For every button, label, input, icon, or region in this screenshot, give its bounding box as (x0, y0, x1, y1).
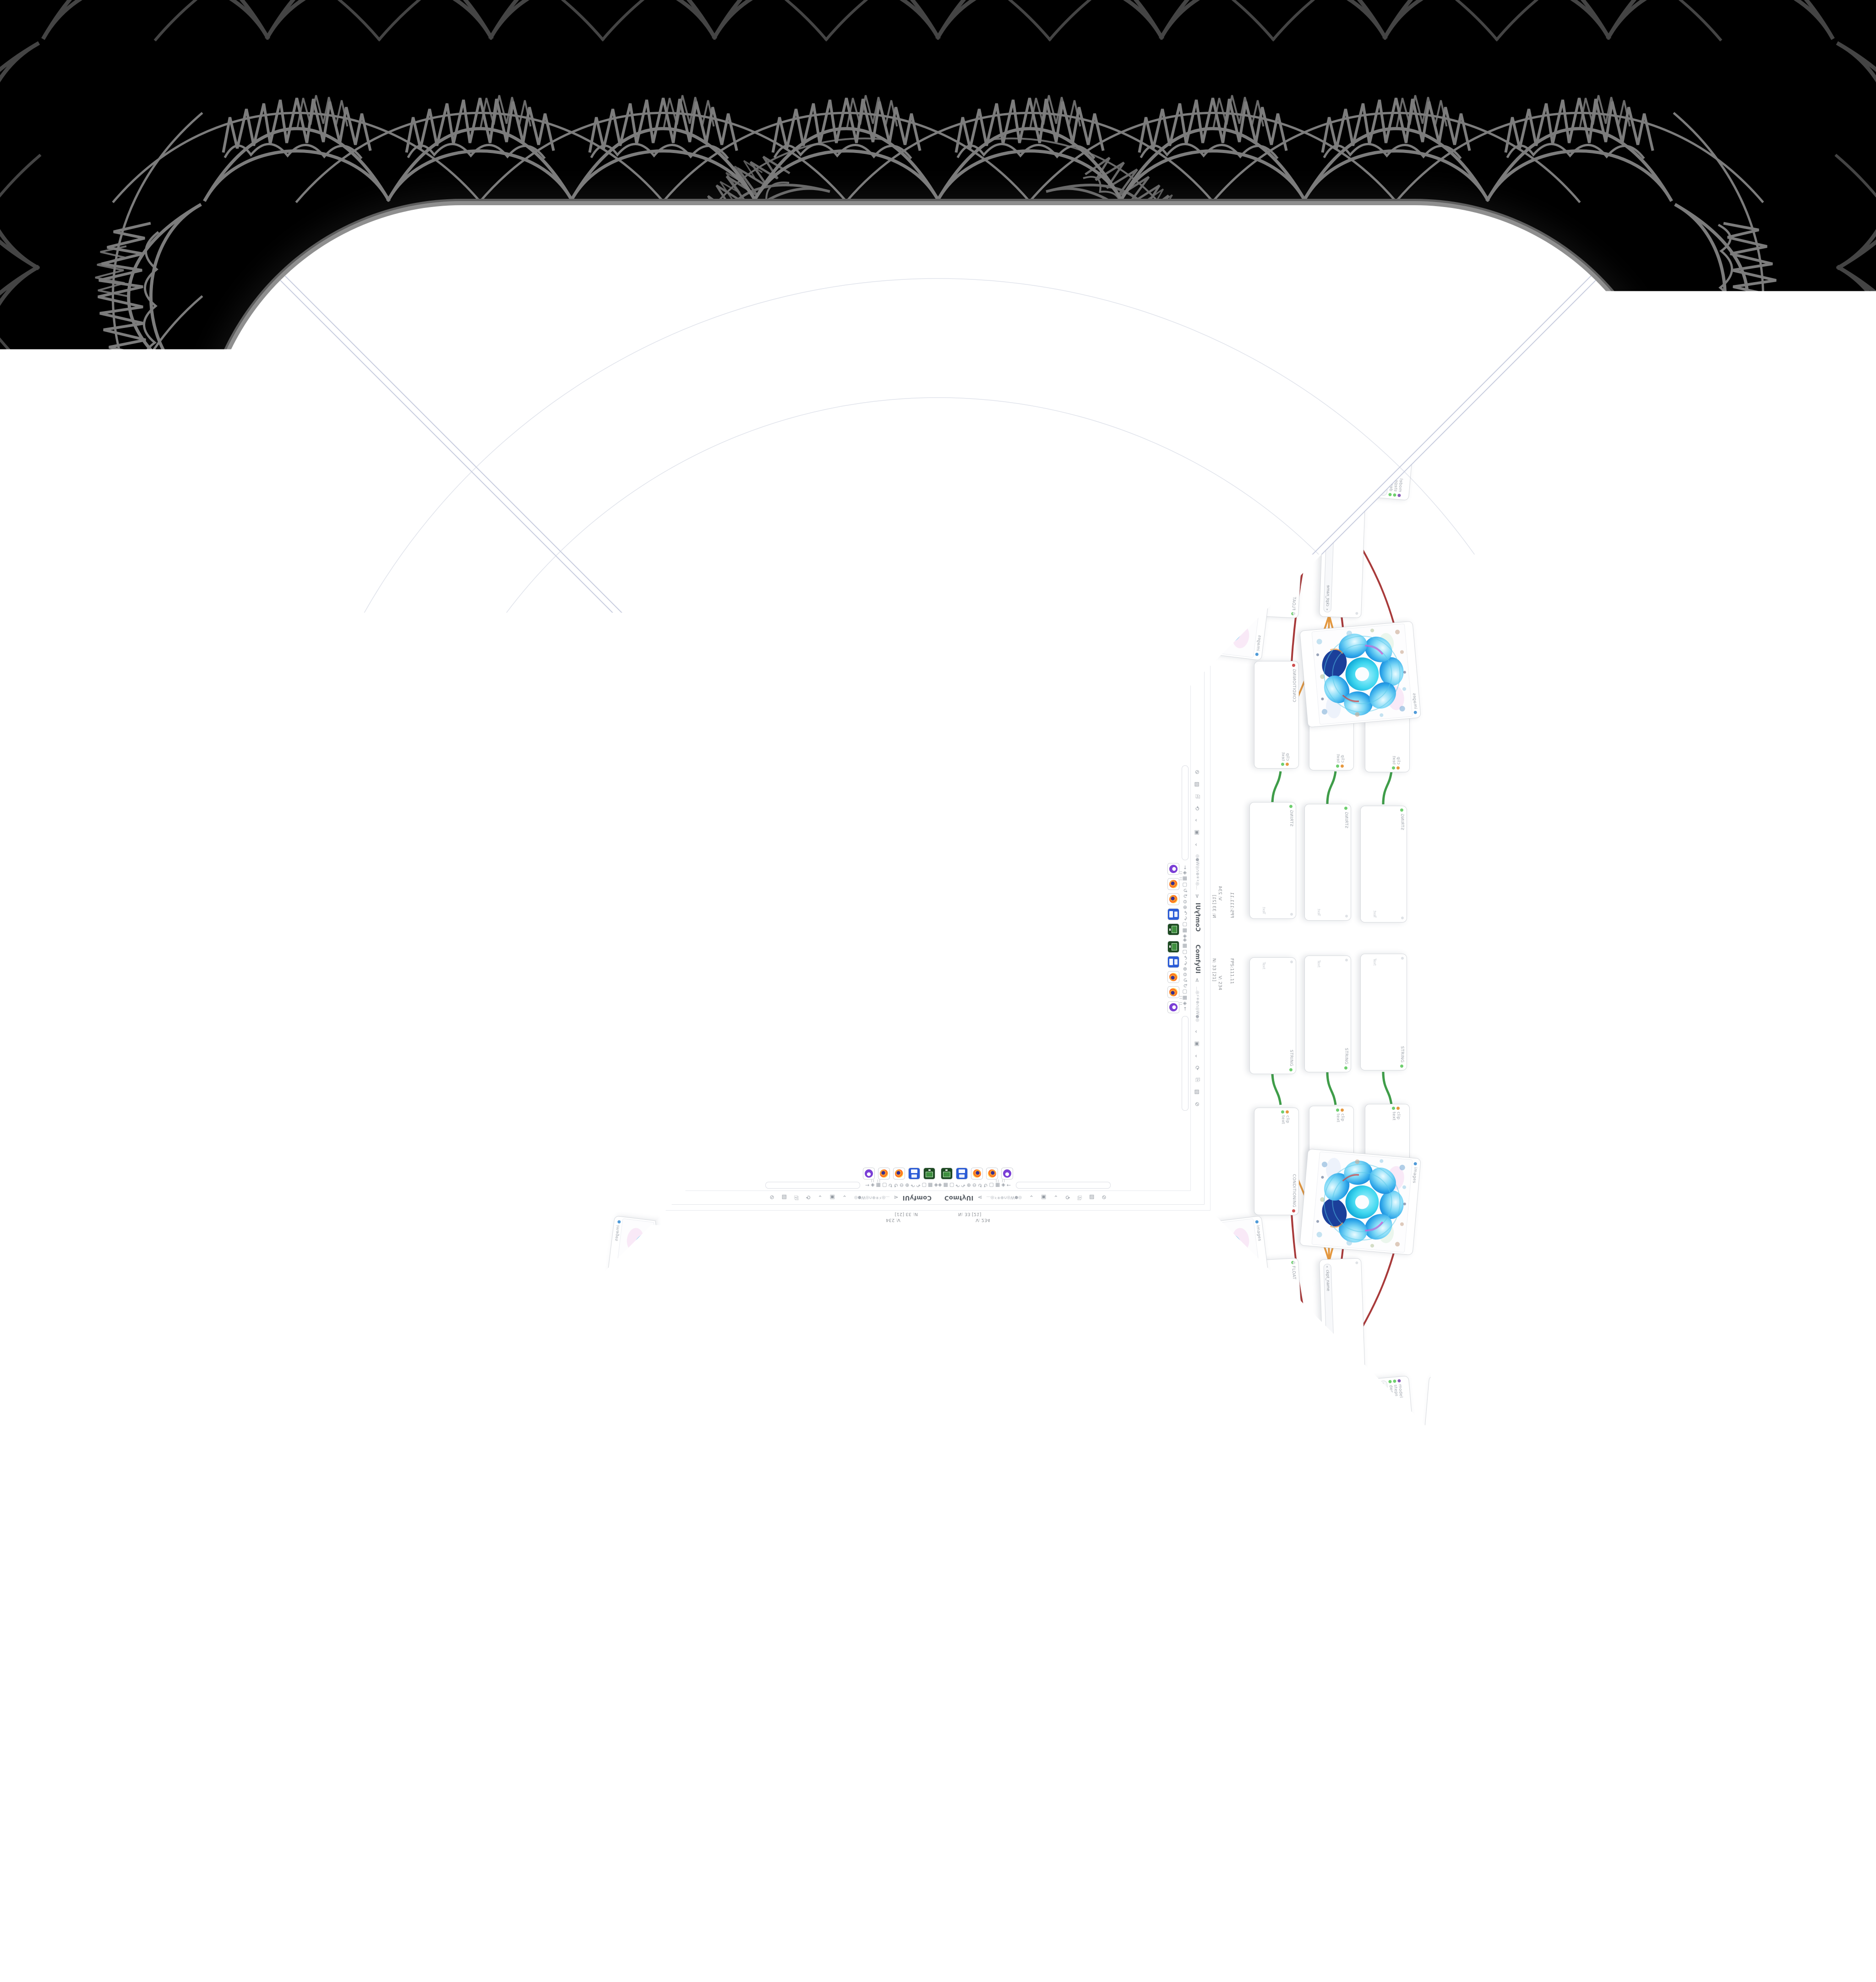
canvas-toolbar-track[interactable] (1182, 765, 1189, 860)
output-dot[interactable] (808, 439, 812, 442)
node-collapse-dot[interactable] (957, 439, 960, 442)
clear-workflow-icon[interactable]: ⊘ (1102, 233, 1107, 239)
clear-workflow-icon[interactable]: ⊘ (676, 770, 682, 774)
float-output-dot[interactable] (1449, 1534, 1452, 1537)
denoised-output-dot[interactable] (1625, 296, 1630, 301)
preview-image-node[interactable]: images (455, 621, 577, 728)
text-placeholder[interactable]: Text (909, 1317, 916, 1321)
output-dot[interactable] (664, 1543, 667, 1546)
firefox-icon[interactable] (971, 1659, 983, 1671)
denoise-input-dot[interactable] (1389, 493, 1392, 497)
node-collapse-dot[interactable] (959, 1345, 961, 1348)
canvas-toolbar-track[interactable] (765, 688, 860, 694)
string-node[interactable]: STRING Text (525, 804, 572, 921)
workflow-caret-icon[interactable]: ⌄ (676, 842, 682, 847)
string-node[interactable]: STRING Text (806, 469, 922, 516)
image-viewer-app-icon[interactable] (941, 1168, 953, 1179)
preview-image-node[interactable]: images (551, 205, 661, 311)
output-dot[interactable] (1401, 808, 1404, 812)
denoise-input-dot[interactable] (1446, 1380, 1450, 1383)
canvas-toolbar-track[interactable] (1649, 765, 1656, 860)
ckpt-name-widget[interactable]: ckpt_name RealVisXL_V4.0_Lightning.safet… (413, 1500, 612, 1514)
preview-image-node[interactable]: images (1417, 621, 1538, 728)
model-input-dot[interactable] (1437, 1379, 1440, 1383)
ckpt-name-widget[interactable]: ckpt_name RealVisXL_V4.0_Lightning.safet… (1264, 1500, 1463, 1514)
clip-input-dot[interactable] (1110, 1549, 1113, 1552)
node-collapse-dot[interactable] (528, 915, 531, 917)
conditioning-node[interactable]: CONDITIONING clip text (577, 1108, 622, 1215)
preview-image-node[interactable]: images (621, 455, 728, 577)
latent-image-input-dot[interactable] (410, 222, 415, 227)
clip-input-dot[interactable] (1549, 763, 1552, 766)
clipboard-icon[interactable]: ⎘ (794, 1637, 799, 1644)
string-node[interactable]: STRING Text (804, 1487, 921, 1534)
preview-image-node[interactable]: images (1149, 338, 1255, 459)
workflow-caret-icon[interactable]: ⌄ (842, 1638, 847, 1644)
clip-input-dot[interactable] (1108, 532, 1112, 535)
text-placeholder[interactable]: Text (962, 1572, 969, 1576)
robot-app-icon[interactable] (697, 1001, 709, 1013)
output-dot[interactable] (584, 805, 587, 808)
denoise-input-dot[interactable] (1380, 484, 1383, 488)
clear-workflow-icon[interactable]: ⊘ (1102, 676, 1107, 682)
canvas-toolbar-track[interactable] (1016, 1649, 1111, 1656)
string-node[interactable]: STRING Text (957, 288, 1074, 334)
string-node[interactable]: STRING Text (802, 288, 919, 334)
guider-input-dot[interactable] (1633, 423, 1638, 428)
guider-input-dot[interactable] (1448, 1633, 1453, 1638)
string-node[interactable]: STRING Text (955, 1305, 1072, 1351)
text-placeholder[interactable]: Text (958, 499, 965, 503)
denoised-output-dot[interactable] (296, 246, 301, 251)
export-image-icon[interactable]: ▧ (782, 233, 787, 239)
clipboard-icon[interactable]: ⎘ (1078, 1194, 1082, 1201)
clip-input-dot[interactable] (764, 379, 768, 382)
text-placeholder[interactable]: Text (499, 911, 503, 918)
string-node[interactable]: STRING Text (580, 802, 627, 919)
output-dot[interactable] (1209, 581, 1212, 584)
text-placeholder[interactable]: Text (1373, 911, 1377, 918)
string-node[interactable]: STRING Text (954, 1431, 1070, 1478)
output-dot[interactable] (1292, 664, 1296, 667)
node-collapse-dot[interactable] (612, 1480, 615, 1483)
steps-input-dot[interactable] (1380, 431, 1383, 435)
clip-input-dot[interactable] (1341, 764, 1344, 768)
ckpt-name-widget[interactable]: ckpt_name RealVisXL_V4.0_Lightning.safet… (361, 1264, 376, 1463)
clip-input-dot[interactable] (1108, 379, 1112, 382)
node-collapse-dot[interactable] (960, 583, 963, 586)
preview-image-node[interactable]: images (205, 551, 311, 661)
text-input-dot[interactable] (1554, 763, 1557, 766)
workflow-name[interactable]: …◎⚡✳⊕∩◎W●◎ (1638, 854, 1643, 890)
workflow-name[interactable]: …◎⚡✳⊕∩◎W●◎ (234, 854, 238, 890)
output-dot[interactable] (1545, 1068, 1549, 1071)
share-icon[interactable]: ⋖ (1194, 894, 1201, 898)
output-dot[interactable] (1434, 1065, 1438, 1068)
preview-image-node[interactable]: images (1565, 1216, 1671, 1326)
string-node[interactable]: STRING Text (343, 956, 389, 1072)
images-input-dot[interactable] (653, 294, 656, 297)
image-output-dot[interactable] (293, 223, 298, 227)
string-node[interactable]: STRING Text (469, 806, 516, 923)
sigmas-input-dot[interactable] (228, 1457, 232, 1462)
output-dot[interactable] (1490, 1066, 1494, 1070)
clip-output-dot[interactable] (391, 1460, 394, 1463)
node-collapse-dot[interactable] (383, 959, 386, 961)
node-collapse-dot[interactable] (959, 383, 961, 386)
firefox-icon[interactable] (986, 206, 998, 218)
model-input-dot[interactable] (494, 1398, 497, 1402)
text-placeholder[interactable]: Text (1317, 909, 1321, 916)
output-dot[interactable] (1571, 251, 1576, 256)
model-input-dot[interactable] (436, 1379, 440, 1383)
sampler-input-dot[interactable] (233, 419, 237, 424)
text-placeholder[interactable]: Text (907, 610, 914, 614)
text-placeholder[interactable]: Text (1572, 962, 1576, 969)
float-output-dot[interactable] (1449, 339, 1452, 343)
text-placeholder[interactable]: Text (1262, 962, 1266, 969)
output-dot[interactable] (1064, 473, 1068, 476)
images-input-dot[interactable] (653, 1256, 656, 1259)
firefox-icon[interactable] (878, 206, 890, 218)
workflow-name[interactable]: …◎⚡✳⊕∩◎W●◎ (854, 234, 889, 238)
text-input-dot[interactable] (763, 592, 766, 595)
string-node[interactable]: STRING Text (802, 1542, 919, 1589)
text-placeholder[interactable]: Text (958, 1461, 965, 1465)
save-icon[interactable]: ▣ (1041, 233, 1046, 239)
images-input-dot[interactable] (711, 1414, 714, 1418)
export-image-icon[interactable]: ▧ (782, 1638, 787, 1644)
node-collapse-dot[interactable] (472, 917, 475, 919)
share-icon[interactable]: ⋖ (978, 1195, 982, 1201)
save-icon[interactable]: ▣ (233, 1041, 239, 1046)
node-collapse-dot[interactable] (913, 1545, 916, 1548)
canvas-toolbar-icons[interactable]: ◈▦▢↶↷⊕⊖↺↻▢▦◈← (1650, 938, 1656, 1012)
text-input-dot[interactable] (1554, 1110, 1557, 1114)
refresh-icon[interactable]: ⟳ (676, 806, 682, 810)
images-input-dot[interactable] (617, 653, 621, 656)
node-collapse-dot[interactable] (957, 1401, 960, 1404)
output-dot[interactable] (1345, 1066, 1348, 1070)
node-collapse-dot[interactable] (915, 528, 917, 531)
export-image-icon[interactable]: ▧ (1089, 1638, 1094, 1644)
denoise-input-dot[interactable] (493, 484, 496, 488)
text-placeholder[interactable]: Text (1461, 911, 1465, 918)
text-placeholder[interactable]: Text (300, 907, 304, 914)
workflow-name[interactable]: …◎⚡✳⊕∩◎W●◎ (234, 987, 238, 1022)
denoised-output-dot[interactable] (246, 1575, 251, 1580)
steps-input-dot[interactable] (493, 480, 497, 483)
canvas-toolbar-track[interactable] (765, 220, 860, 227)
node-collapse-dot[interactable] (328, 913, 331, 916)
images-input-dot[interactable] (288, 246, 292, 250)
share-icon[interactable]: ⋖ (1637, 978, 1644, 983)
canvas-toolbar-icons[interactable]: ◈▦▢↶↷⊕⊖↺↻▢▦◈← (938, 1650, 1012, 1656)
canvas-toolbar-track[interactable] (220, 1016, 227, 1111)
denoised-output-dot[interactable] (1625, 1575, 1630, 1580)
clip-input-dot[interactable] (1107, 476, 1110, 480)
node-collapse-dot[interactable] (1480, 612, 1483, 615)
steps-input-dot[interactable] (1441, 493, 1445, 497)
vae-output-dot[interactable] (1461, 384, 1464, 388)
output-dot[interactable] (808, 473, 812, 476)
guider-input-dot[interactable] (423, 1633, 428, 1638)
share-icon[interactable]: ⋖ (894, 233, 898, 239)
robot-app-icon[interactable] (206, 863, 218, 875)
text-placeholder[interactable]: Text (1572, 907, 1576, 914)
ckpt-name-widget[interactable]: ckpt_name RealVisXL_V4.0_Lightning.safet… (413, 361, 612, 376)
firefox-icon[interactable] (971, 206, 983, 218)
share-icon[interactable]: ⋖ (894, 1195, 898, 1201)
text-input-dot[interactable] (764, 1337, 768, 1340)
text-input-dot[interactable] (1392, 766, 1396, 770)
steps-input-dot[interactable] (480, 1380, 483, 1383)
output-dot[interactable] (807, 529, 810, 532)
conditioning-node[interactable]: CONDITIONING clip text (1539, 661, 1584, 769)
preview-image-node[interactable]: images (1216, 1565, 1326, 1671)
text-input-dot[interactable] (764, 1499, 768, 1502)
text-placeholder[interactable]: Text (1373, 958, 1377, 966)
text-placeholder[interactable]: Text (962, 610, 969, 614)
node-collapse-dot[interactable] (916, 1434, 919, 1437)
sigmas-input-dot[interactable] (414, 1644, 419, 1649)
string-node[interactable]: STRING Text (806, 399, 922, 445)
vae-output-dot[interactable] (1488, 1461, 1491, 1464)
output-dot[interactable] (808, 1435, 812, 1438)
noise-input-dot[interactable] (1628, 1444, 1632, 1449)
conditioning-node[interactable]: CONDITIONING clip text (1539, 1108, 1584, 1215)
node-collapse-dot[interactable] (913, 328, 916, 331)
workflow-name[interactable]: …◎⚡✳⊕∩◎W●◎ (1195, 854, 1200, 890)
robot-app-icon[interactable] (1658, 863, 1670, 875)
node-collapse-dot[interactable] (612, 518, 615, 521)
canvas-toolbar-icons[interactable]: ◈▦▢↶↷⊕⊖↺↻▢▦◈← (864, 1183, 938, 1189)
text-input-dot[interactable] (1443, 766, 1446, 770)
output-dot[interactable] (1543, 1209, 1546, 1212)
workflow-caret-icon[interactable]: ⌄ (233, 842, 239, 847)
output-dot[interactable] (1064, 439, 1068, 442)
node-collapse-dot[interactable] (1434, 917, 1437, 919)
string-node[interactable]: STRING Text (1431, 806, 1478, 923)
clip-input-dot[interactable] (1341, 1108, 1344, 1112)
preview-image-node[interactable]: images (621, 1417, 728, 1539)
vae-output-dot[interactable] (384, 412, 387, 415)
text-input-dot[interactable] (1107, 431, 1110, 434)
images-input-dot[interactable] (1414, 1162, 1418, 1166)
clear-workflow-icon[interactable]: ⊘ (769, 676, 774, 682)
model-input-dot[interactable] (436, 494, 440, 497)
preview-image-node[interactable]: images (1149, 1299, 1255, 1421)
output-dot[interactable] (584, 1068, 587, 1071)
images-input-dot[interactable] (1626, 288, 1631, 292)
text-placeholder[interactable]: Text (610, 907, 614, 914)
node-collapse-dot[interactable] (528, 959, 531, 961)
text-input-dot[interactable] (1110, 1282, 1113, 1285)
floppy-app-icon[interactable] (956, 1168, 968, 1179)
sampler-input-dot[interactable] (1453, 233, 1457, 237)
denoised-output-dot[interactable] (1575, 1626, 1580, 1630)
output-dot[interactable] (805, 1545, 808, 1549)
save-icon[interactable]: ▣ (1194, 830, 1201, 835)
images-input-dot[interactable] (458, 711, 462, 715)
firefox-icon[interactable] (697, 893, 709, 905)
refresh-icon[interactable]: ⟳ (1065, 1195, 1070, 1201)
firefox-icon[interactable] (893, 1168, 905, 1179)
model-input-dot[interactable] (475, 1379, 479, 1383)
images-input-dot[interactable] (1626, 1584, 1631, 1589)
denoise-input-dot[interactable] (493, 1389, 496, 1392)
model-input-dot[interactable] (1379, 1398, 1383, 1402)
node-collapse-dot[interactable] (915, 1490, 917, 1493)
text-input-dot[interactable] (481, 1107, 484, 1110)
image-viewer-app-icon[interactable] (941, 206, 953, 218)
model-input-dot[interactable] (1379, 436, 1383, 440)
clip-input-dot[interactable] (1110, 1286, 1113, 1289)
workflow-caret-icon[interactable]: ⌄ (1194, 1029, 1201, 1034)
string-node[interactable]: STRING Text (1304, 804, 1351, 921)
clipboard-icon[interactable]: ⎘ (232, 794, 239, 799)
clip-input-dot[interactable] (1438, 1107, 1441, 1110)
string-node[interactable]: STRING Text (288, 802, 334, 919)
clip-input-dot[interactable] (764, 1494, 768, 1497)
output-dot[interactable] (1292, 1209, 1296, 1212)
firefox-icon[interactable] (206, 971, 218, 983)
export-image-icon[interactable]: ▧ (676, 1089, 682, 1094)
clip-input-dot[interactable] (324, 1110, 327, 1114)
text-input-dot[interactable] (1282, 763, 1285, 766)
text-input-dot[interactable] (1107, 1392, 1110, 1396)
output-dot[interactable] (328, 1068, 331, 1071)
sampler-input-dot[interactable] (1639, 419, 1643, 424)
string-node[interactable]: STRING Text (954, 469, 1070, 516)
text-input-dot[interactable] (1108, 1337, 1112, 1340)
denoised-output-dot[interactable] (296, 1626, 301, 1630)
refresh-icon[interactable]: ⟳ (676, 1065, 682, 1070)
output-dot[interactable] (1209, 331, 1212, 334)
sampler-input-dot[interactable] (1639, 1453, 1643, 1458)
workflow-caret-icon[interactable]: ⌄ (1637, 842, 1644, 847)
node-collapse-dot[interactable] (328, 961, 331, 963)
share-icon[interactable]: ⋖ (978, 1638, 982, 1644)
clipboard-icon[interactable]: ⎘ (675, 794, 682, 799)
workflow-caret-icon[interactable]: ⌄ (233, 1029, 239, 1034)
text-input-dot[interactable] (766, 481, 769, 484)
latent-image-input-dot[interactable] (222, 410, 227, 415)
steps-input-dot[interactable] (431, 493, 435, 497)
conditioning-node[interactable]: CONDITIONING clip text (661, 1539, 769, 1584)
preview-image-node[interactable]: images (1299, 1149, 1421, 1256)
output-dot[interactable] (807, 383, 810, 386)
firefox-icon[interactable] (697, 971, 709, 983)
floppy-app-icon[interactable] (908, 1659, 920, 1671)
text-placeholder[interactable]: Text (411, 911, 415, 918)
clip-output-dot[interactable] (1460, 391, 1463, 394)
output-dot[interactable] (331, 1209, 334, 1212)
floppy-app-icon[interactable] (908, 1168, 920, 1179)
text-placeholder[interactable]: Text (355, 960, 359, 967)
node-collapse-dot[interactable] (1474, 326, 1477, 329)
save-caret-icon[interactable]: ⌄ (676, 818, 682, 823)
canvas-toolbar-icons[interactable]: ◈▦▢↶↷⊕⊖↺↻▢▦◈← (864, 1650, 938, 1656)
image-viewer-app-icon[interactable] (923, 1659, 935, 1671)
output-dot[interactable] (807, 1491, 810, 1494)
model-input-dot[interactable] (1398, 1379, 1402, 1383)
node-collapse-dot[interactable] (1261, 518, 1264, 521)
clip-input-dot[interactable] (1108, 1494, 1112, 1497)
clipboard-icon[interactable]: ⎘ (794, 1194, 799, 1201)
output-dot[interactable] (1068, 328, 1071, 331)
image-viewer-app-icon[interactable] (697, 941, 709, 953)
refresh-icon[interactable]: ⟳ (1065, 676, 1070, 682)
string-node[interactable]: STRING Text (804, 1305, 921, 1351)
clear-workflow-icon[interactable]: ⊘ (769, 1195, 774, 1201)
clipboard-icon[interactable]: ⎘ (1078, 1637, 1082, 1644)
conditioning-node[interactable]: CONDITIONING clip text (577, 661, 622, 769)
text-input-dot[interactable] (1108, 537, 1112, 540)
conditioning-node[interactable]: CONDITIONING clip text (292, 1108, 337, 1215)
firefox-icon[interactable] (206, 893, 218, 905)
canvas-toolbar-track[interactable] (1016, 688, 1111, 694)
node-collapse-dot[interactable] (916, 439, 919, 442)
node-collapse-dot[interactable] (439, 917, 442, 919)
string-node[interactable]: STRING Text (804, 525, 921, 572)
floppy-app-icon[interactable] (1658, 956, 1670, 968)
string-node[interactable]: STRING Text (1542, 957, 1588, 1074)
text-input-dot[interactable] (1336, 764, 1340, 768)
save-icon[interactable]: ▣ (1041, 1638, 1046, 1644)
clip-input-dot[interactable] (766, 1438, 769, 1441)
save-caret-icon[interactable]: ⌄ (818, 233, 823, 239)
conditioning-node[interactable]: CONDITIONING clip text (1107, 292, 1215, 337)
workflow-caret-icon[interactable]: ⌄ (1029, 1638, 1034, 1644)
model-input-dot[interactable] (1398, 494, 1402, 497)
text-placeholder[interactable]: Text (911, 411, 918, 415)
string-node[interactable]: STRING Text (1487, 956, 1533, 1072)
firefox-icon[interactable] (697, 878, 709, 890)
firefox-icon[interactable] (878, 1659, 890, 1671)
workflow-name[interactable]: …◎⚡✳⊕∩◎W●◎ (1638, 987, 1643, 1022)
node-collapse-dot[interactable] (1261, 1355, 1264, 1358)
firefox-icon[interactable] (206, 878, 218, 890)
string-node[interactable]: STRING Text (957, 580, 1074, 627)
output-dot[interactable] (439, 1065, 442, 1068)
output-dot[interactable] (805, 584, 808, 587)
refresh-icon[interactable]: ⟳ (1637, 1065, 1644, 1070)
clip-input-dot[interactable] (764, 532, 768, 535)
text-input-dot[interactable] (375, 1108, 378, 1112)
output-dot[interactable] (383, 807, 386, 810)
model-input-dot[interactable] (494, 475, 497, 479)
string-node[interactable]: STRING Text (580, 957, 627, 1074)
clip-input-dot[interactable] (1494, 1108, 1497, 1112)
save-icon[interactable]: ▣ (830, 1638, 835, 1644)
node-collapse-dot[interactable] (393, 1261, 396, 1264)
node-collapse-dot[interactable] (1490, 915, 1493, 917)
workflow-caret-icon[interactable]: ⌄ (842, 1195, 847, 1201)
workflow-caret-icon[interactable]: ⌄ (842, 676, 847, 682)
images-input-dot[interactable] (1255, 653, 1259, 656)
refresh-icon[interactable]: ⟳ (1194, 806, 1201, 810)
text-placeholder[interactable]: Text (907, 1572, 914, 1576)
output-dot[interactable] (529, 1066, 532, 1070)
ckpt-name-widget[interactable]: ckpt_name RealVisXL_V4.0_Lightning.safet… (1500, 413, 1514, 612)
refresh-icon[interactable]: ⟳ (806, 676, 810, 682)
text-placeholder[interactable]: Text (960, 555, 967, 559)
clear-workflow-icon[interactable]: ⊘ (769, 233, 774, 239)
node-collapse-dot[interactable] (399, 326, 403, 329)
text-input-dot[interactable] (764, 375, 768, 378)
text-placeholder[interactable]: Text (960, 1517, 967, 1521)
